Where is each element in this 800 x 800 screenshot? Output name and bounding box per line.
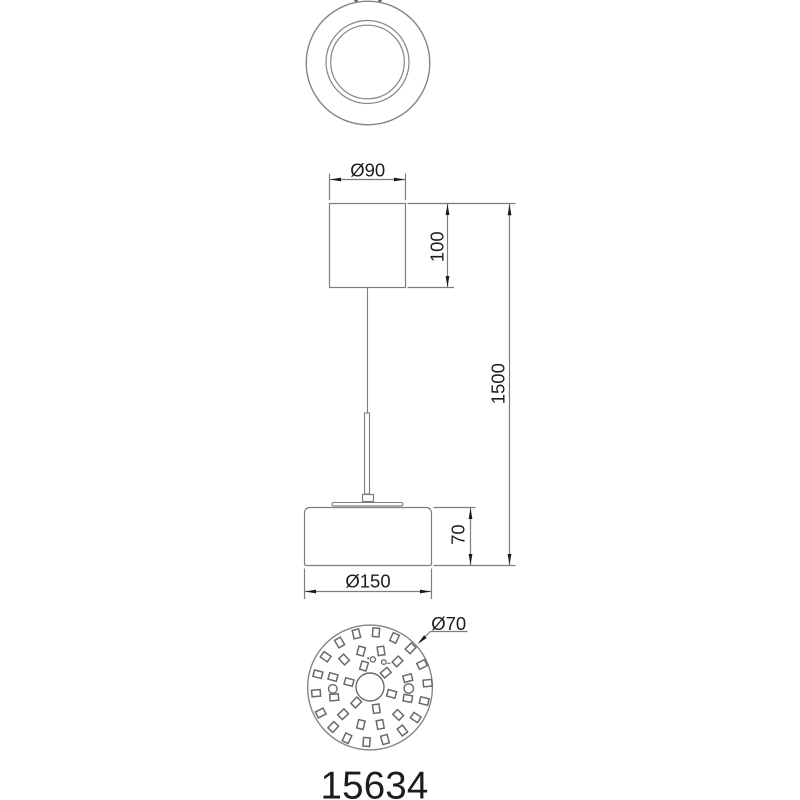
svg-text:15634: 15634 — [320, 764, 428, 800]
svg-text:Ø150: Ø150 — [345, 571, 390, 592]
svg-text:1500: 1500 — [488, 363, 509, 404]
svg-text:Ø90: Ø90 — [350, 159, 385, 180]
svg-text:Ø70: Ø70 — [431, 613, 466, 634]
svg-text:70: 70 — [447, 524, 468, 545]
svg-text:100: 100 — [427, 231, 448, 262]
